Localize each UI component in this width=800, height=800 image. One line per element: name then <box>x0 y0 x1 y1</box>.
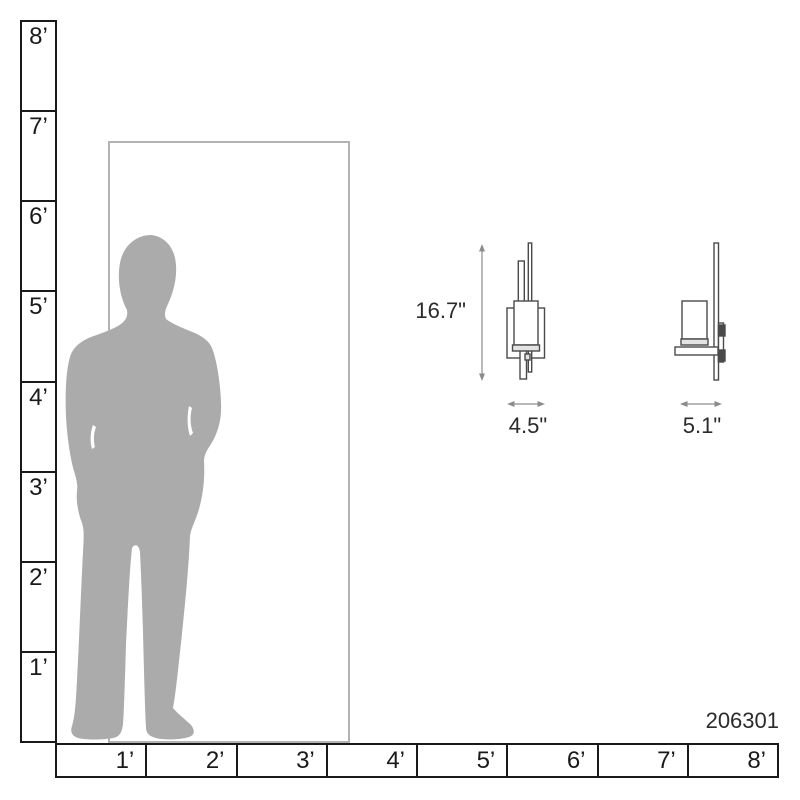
vertical-ruler-tick-4ft: 4’ <box>22 383 55 473</box>
vertical-ruler-tick-8ft: 8’ <box>22 22 55 112</box>
sconce-front-drawing <box>507 243 545 379</box>
vertical-ruler-tick-5ft: 5’ <box>22 292 55 382</box>
horizontal-ruler-tick-3ft: 3’ <box>238 745 328 776</box>
height-dimension-label: 16.7" <box>398 299 466 323</box>
horizontal-ruler: 1’ 2’ 3’ 4’ 5’ 6’ 7’ 8’ <box>55 743 779 778</box>
depth-dimension-label: 5.1" <box>660 414 744 438</box>
side-glass-shade <box>682 301 707 339</box>
vertical-ruler-tick-3ft: 3’ <box>22 473 55 563</box>
width-dimension-label: 4.5" <box>486 414 570 438</box>
width-dimension-arrow-icon <box>507 401 545 407</box>
horizontal-ruler-tick-8ft: 8’ <box>689 745 777 776</box>
front-upper-rod-right <box>528 243 531 303</box>
horizontal-ruler-tick-1ft: 1’ <box>57 745 147 776</box>
horizontal-ruler-tick-7ft: 7’ <box>599 745 689 776</box>
front-glass-shade <box>514 301 538 345</box>
front-lower-rod-left <box>520 347 527 379</box>
sconce-side-drawing <box>675 243 725 380</box>
side-shade-rim <box>681 339 708 345</box>
front-shade-rim <box>513 345 540 351</box>
side-bracket-nub-top <box>719 325 726 336</box>
vertical-ruler-tick-1ft: 1’ <box>22 653 55 741</box>
horizontal-ruler-tick-5ft: 5’ <box>418 745 508 776</box>
vertical-ruler-tick-7ft: 7’ <box>22 112 55 202</box>
vertical-ruler-tick-6ft: 6’ <box>22 202 55 292</box>
front-upper-rod-left <box>518 261 524 303</box>
person-silhouette-icon <box>63 232 235 743</box>
horizontal-ruler-tick-2ft: 2’ <box>147 745 237 776</box>
side-bracket-nub-bottom <box>719 350 726 361</box>
horizontal-ruler-tick-4ft: 4’ <box>328 745 418 776</box>
front-rod-connector <box>525 354 530 360</box>
product-size-chart-diagram: 8’ 7’ 6’ 5’ 4’ 3’ 2’ 1’ 1’ 2’ 3’ 4’ 5’ 6… <box>0 0 800 800</box>
vertical-ruler: 8’ 7’ 6’ 5’ 4’ 3’ 2’ 1’ <box>20 20 57 743</box>
depth-dimension-arrow-icon <box>680 401 722 407</box>
height-dimension-arrow-icon <box>479 244 485 381</box>
side-support-arm <box>675 347 718 355</box>
horizontal-ruler-tick-6ft: 6’ <box>508 745 598 776</box>
person-body-shape <box>66 235 222 740</box>
model-number: 206301 <box>629 709 779 733</box>
vertical-ruler-tick-2ft: 2’ <box>22 563 55 653</box>
